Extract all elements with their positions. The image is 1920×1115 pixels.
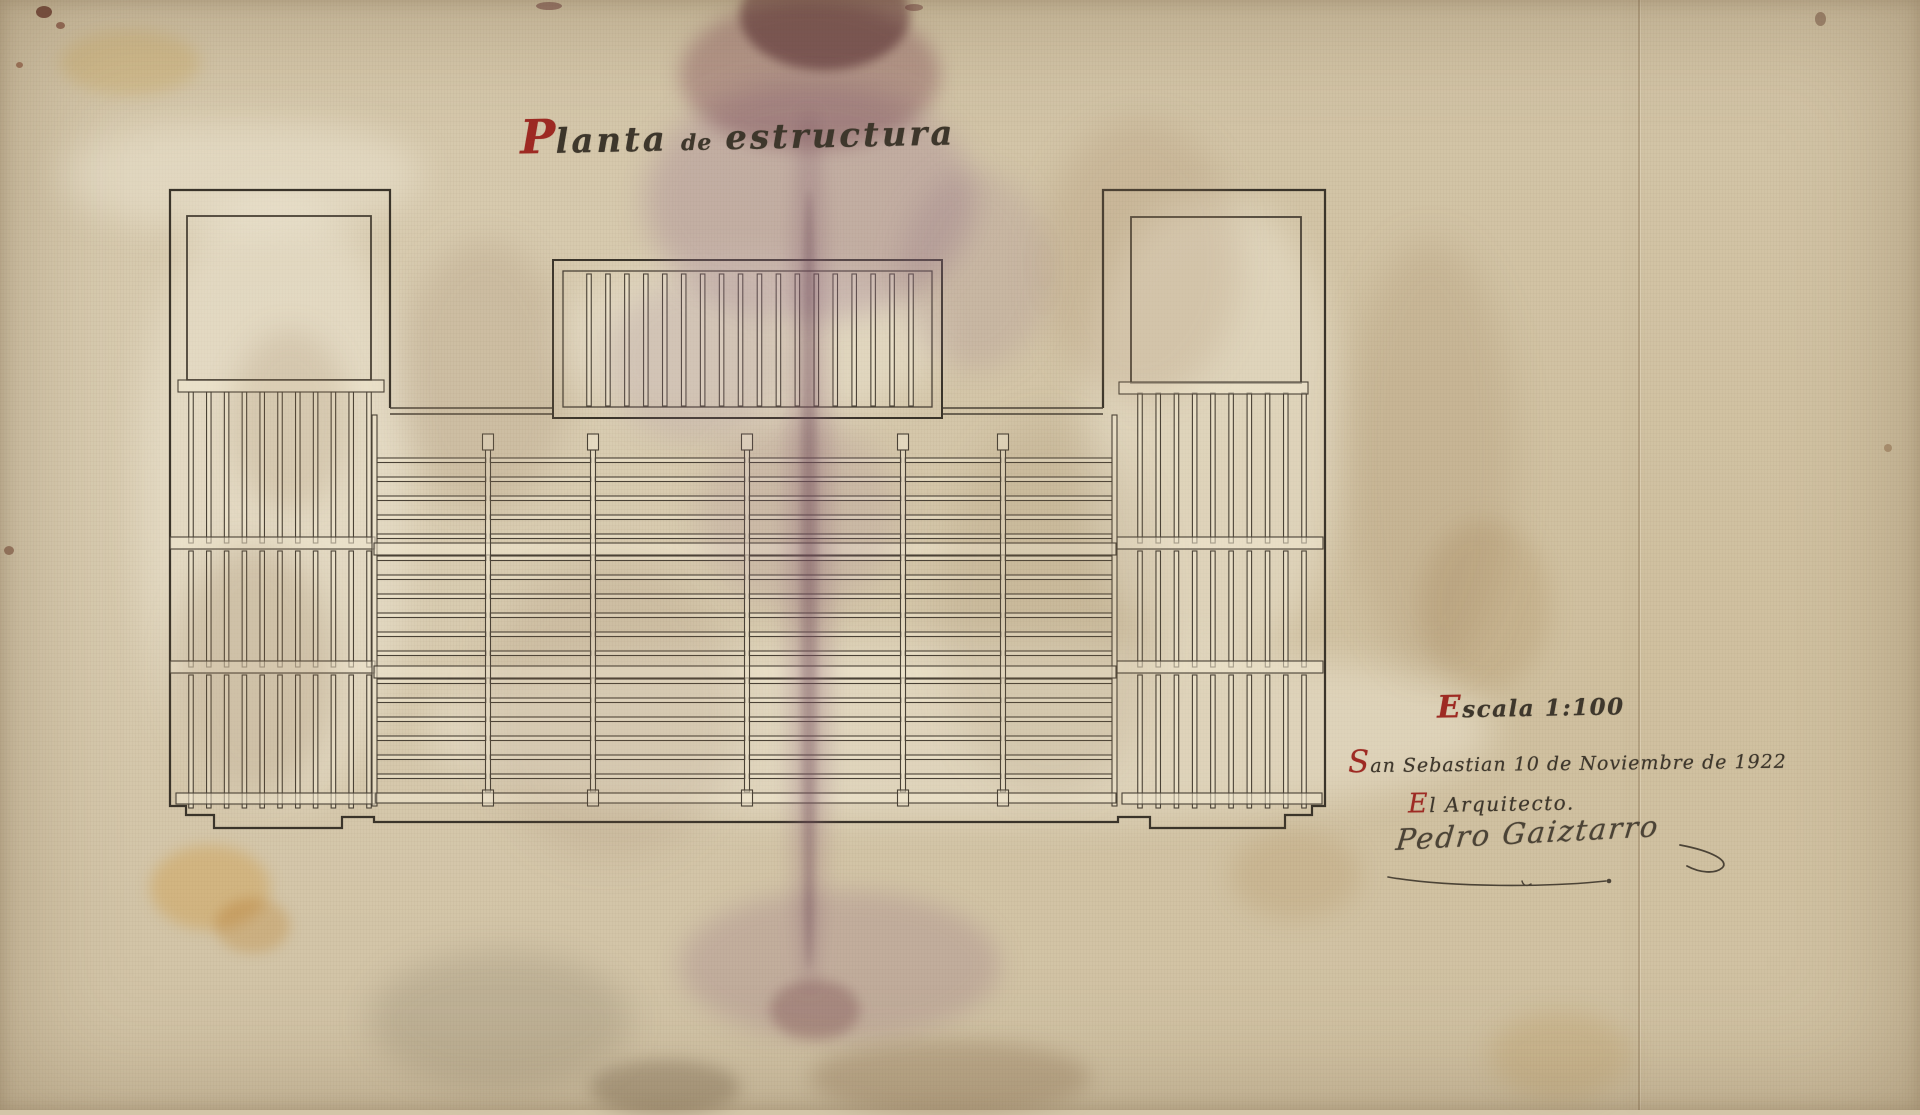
structure-plan-drawing [0, 0, 1920, 1110]
architect-text: l Arquitecto. [1429, 791, 1575, 818]
date-initial: S [1348, 744, 1371, 780]
title-mid: de [681, 130, 713, 157]
drawing-title: Plantadeestructura [519, 101, 955, 165]
title-word2: estructura [725, 113, 956, 158]
scale-initial: E [1437, 689, 1463, 725]
paper-fold-crease [1638, 0, 1640, 1110]
wing-left [170, 216, 384, 808]
scanned-drawing-sheet: { "document": { "kind": "Architectural s… [0, 0, 1920, 1110]
place-date-line: San Sebastian 10 de Noviembre de 1922 [1348, 740, 1787, 781]
center-block [553, 260, 942, 418]
title-word1: lanta [555, 119, 668, 161]
date-text: an Sebastian 10 de Noviembre de 1922 [1370, 751, 1787, 777]
scale-label: Escala 1:100 [1437, 686, 1625, 725]
signature-flourish [1380, 835, 1750, 905]
title-initial: P [519, 110, 555, 166]
notch-walls [390, 408, 1103, 414]
architect-initial: E [1408, 788, 1430, 819]
central-floor [372, 415, 1117, 806]
scale-text: scala 1:100 [1462, 693, 1625, 723]
wing-right [1117, 217, 1323, 808]
